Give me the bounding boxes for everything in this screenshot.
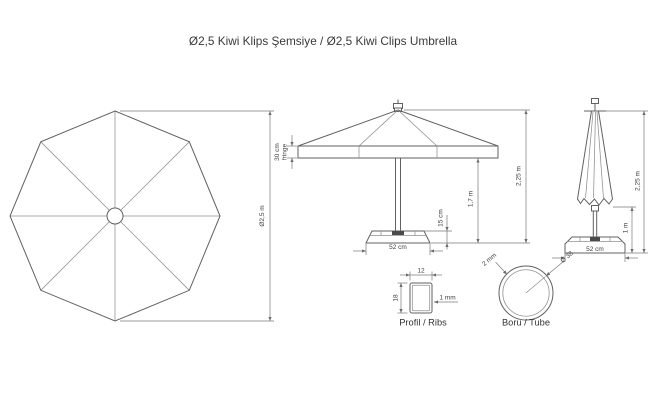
height-dimension: 18 [393,283,408,313]
tube-section-detail: Ø 38 2 mm Boru / Tube [481,250,575,328]
finial-knob [592,99,599,104]
rib-line [115,142,189,216]
leader-arrow [496,262,508,275]
top-view: Ø2,5 m [10,111,274,321]
base-pole-socket [392,231,404,235]
base-width-label: 52 cm [389,244,407,251]
pole-height-label: 1,7 m [468,191,475,207]
rib-profile-detail: 12 18 1 mm Profil / Ribs [393,268,459,328]
width-dimension: 12 [400,268,442,281]
total-height-label: 2,25 m [516,166,523,186]
canopy-edge-right [398,110,498,146]
base-width-dimension: 52 cm [353,244,443,255]
canopy-edge-left [298,110,398,146]
rib-line [41,142,115,216]
rib-detail-caption: Profil / Ribs [399,318,447,328]
fringe-size-label: 30 cm [274,143,281,161]
tube-thickness-label: 2 mm [481,252,498,268]
base [366,231,430,243]
diameter-label: Ø2,5 m [259,205,266,226]
page-title: Ø2,5 Kiwi Klips Şemsiye / Ø2,5 Kiwi Clip… [189,34,458,48]
rib-width-label: 12 [417,268,425,275]
rib-line [41,216,115,290]
base-width-label: 52 cm [586,246,604,253]
rib-thickness-label: 1 mm [439,295,455,302]
canopy-tie-collar [592,206,599,212]
center-pole-circle [107,208,123,224]
leader-arrow [546,261,564,276]
open-front-view: 30 cm fringe 15 cm 1,7 m 2,25 m 52 cm [274,100,530,256]
canopy-rib [359,110,398,146]
pole [396,158,401,231]
total-height-label: 2,25 m [635,171,642,191]
fringe-dimension: 30 cm fringe [274,135,297,169]
base-height-label: 15 cm [438,209,445,227]
pole [593,211,596,237]
fringe-word-label: fringe [282,143,289,160]
valance-band [298,146,498,158]
total-height-dimension: 2,25 m [404,110,530,243]
closed-side-view: 52 cm 1 m 2,25 m [552,99,648,263]
wall-thickness-callout: 1 mm [434,295,458,303]
rib-profile-outer [410,283,432,313]
canopy [298,110,498,158]
drawing-page: Ø2,5 Kiwi Klips Şemsiye / Ø2,5 Kiwi Clip… [0,0,650,411]
pole-height-dimension: 1,7 m [468,159,479,244]
lower-clearance-label: 1 m [623,223,630,234]
diameter-callout: Ø 38 [546,250,575,276]
tube-detail-caption: Boru / Tube [502,318,550,328]
base-pole-socket [590,237,600,241]
radius-line [526,277,546,294]
technical-drawing: Ø2,5 Kiwi Klips Şemsiye / Ø2,5 Kiwi Clip… [0,0,650,411]
canopy-rib [398,110,437,146]
rib-profile-inner [412,285,429,310]
rib-height-label: 18 [393,294,400,302]
wall-thickness-callout: 2 mm [481,252,507,275]
rib-line [115,216,189,290]
